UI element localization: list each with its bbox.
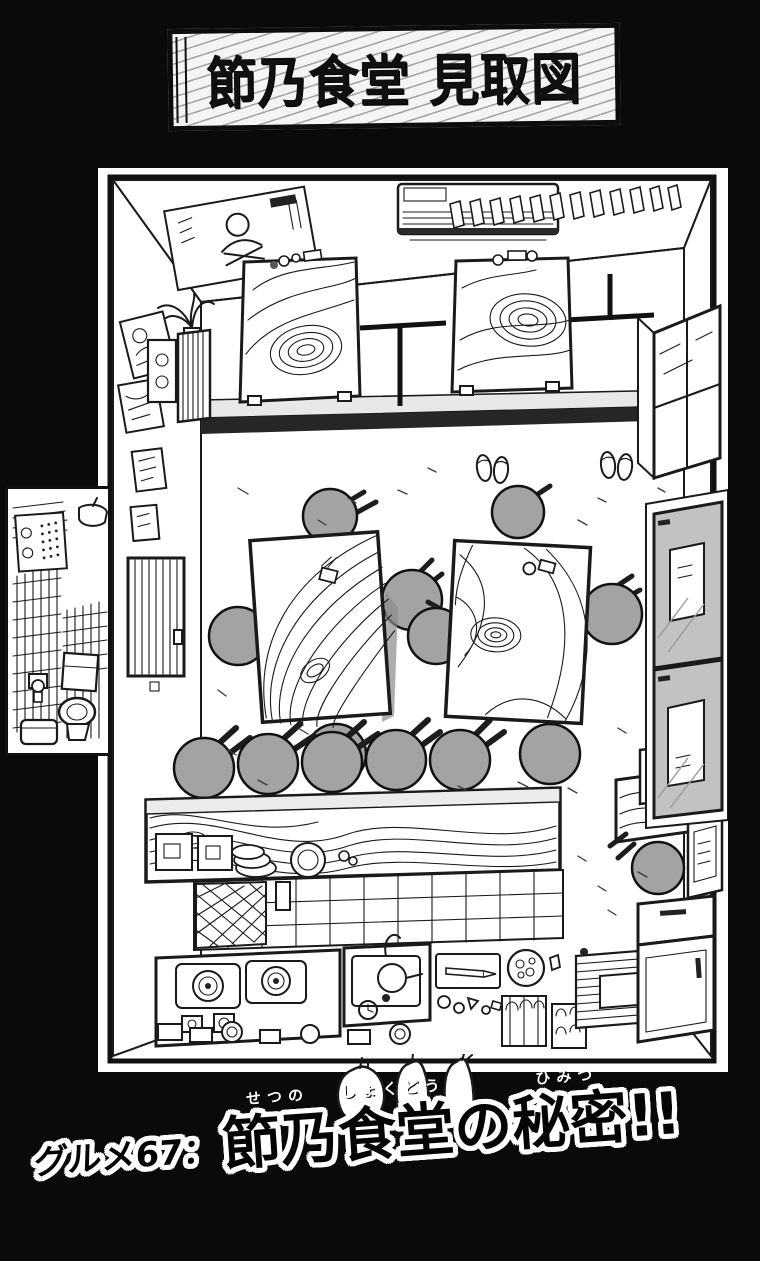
counter-stool-icon xyxy=(366,730,426,790)
bathroom-inset xyxy=(5,486,111,756)
caption-segment: せつの 節乃 xyxy=(221,1107,341,1176)
caption-text: 秘密 xyxy=(510,1083,630,1159)
stool-icon xyxy=(582,584,642,644)
stool-icon xyxy=(632,842,684,894)
caption-text: 食堂 xyxy=(336,1095,456,1171)
entrance-doors xyxy=(646,490,728,828)
intercom-panel-icon xyxy=(15,512,67,571)
caption-text: !! xyxy=(625,1079,683,1151)
chapter-number: グルメ67： xyxy=(33,1122,218,1184)
caption-text: 節乃 xyxy=(220,1103,340,1179)
signboard-title: 節乃食堂 見取図 xyxy=(206,34,583,120)
counter-stool-icon xyxy=(430,730,490,790)
window-icon xyxy=(638,306,720,478)
caption-segment: ひみつ 秘密 xyxy=(510,1087,630,1156)
trash-bin-icon xyxy=(21,720,57,744)
low-table-left xyxy=(240,250,360,405)
caption-text: の xyxy=(452,1091,515,1163)
caption-segment: !! xyxy=(626,1083,683,1147)
kitchen-tiles xyxy=(194,870,563,950)
dish-rack-icon xyxy=(502,996,586,1048)
chapter-caption: グルメ67： せつの 節乃 しょくどう 食堂 の ひみつ 秘密 !! xyxy=(32,1079,741,1189)
counter-stool-icon xyxy=(302,732,362,792)
caption-segment: しょくどう 食堂 xyxy=(336,1099,456,1168)
stool-icon xyxy=(520,724,580,784)
sink-icon xyxy=(344,935,430,1026)
floorplan-drawing xyxy=(98,168,728,1072)
stool-icon xyxy=(492,486,544,538)
caption-segment: の xyxy=(452,1095,514,1160)
refrigerator-icon xyxy=(638,896,714,1042)
counter-stool-icon xyxy=(238,734,298,794)
floorplan-panel xyxy=(98,168,728,1072)
crosshatch-mat xyxy=(196,882,266,948)
dining-table xyxy=(445,541,590,724)
low-table-right xyxy=(452,251,572,395)
counter-stool-icon xyxy=(174,738,234,798)
bathroom-drawing xyxy=(5,486,111,756)
bathroom-door-icon xyxy=(128,558,184,691)
signboard: 節乃食堂 見取図 xyxy=(167,23,620,131)
